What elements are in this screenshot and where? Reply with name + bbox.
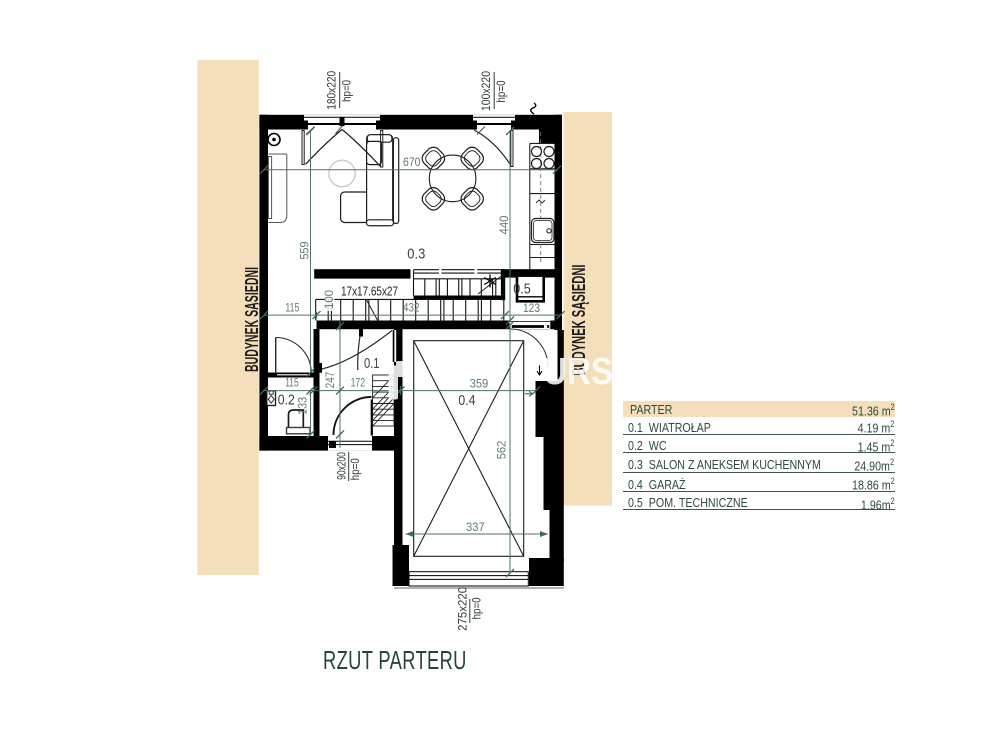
- svg-text:275x220: 275x220: [455, 587, 469, 631]
- svg-text:hp=0: hp=0: [494, 80, 508, 102]
- svg-text:359: 359: [470, 377, 489, 391]
- svg-text:562: 562: [495, 440, 509, 459]
- svg-text:90x200: 90x200: [334, 452, 348, 480]
- svg-text:100x220: 100x220: [479, 71, 493, 111]
- svg-text:559: 559: [297, 241, 311, 259]
- svg-text:hp=0: hp=0: [470, 597, 484, 619]
- svg-text:17x17.65x27: 17x17.65x27: [341, 284, 398, 298]
- svg-text:440: 440: [497, 215, 511, 234]
- svg-text:100: 100: [322, 290, 336, 309]
- svg-text:172: 172: [351, 376, 366, 390]
- svg-text:432: 432: [403, 301, 420, 315]
- svg-text:115: 115: [285, 301, 299, 315]
- svg-text:BUDYNEK SĄSIEDNI: BUDYNEK SĄSIEDNI: [242, 267, 262, 372]
- svg-text:670: 670: [403, 155, 421, 169]
- svg-text:0.5: 0.5: [513, 281, 531, 298]
- svg-text:123: 123: [523, 301, 540, 315]
- svg-text:115: 115: [285, 376, 299, 390]
- svg-text:hp=0: hp=0: [348, 458, 362, 480]
- svg-text:0.3: 0.3: [407, 245, 425, 262]
- svg-text:0.1: 0.1: [364, 355, 380, 372]
- svg-text:0.2: 0.2: [278, 392, 295, 409]
- svg-text:180x220: 180x220: [325, 71, 339, 110]
- svg-text:133: 133: [296, 397, 310, 415]
- svg-text:247: 247: [323, 371, 337, 388]
- svg-text:hp=0: hp=0: [340, 80, 354, 102]
- svg-text:337: 337: [466, 520, 485, 534]
- svg-text:URS: URS: [543, 351, 613, 393]
- svg-text:0.4: 0.4: [458, 392, 475, 409]
